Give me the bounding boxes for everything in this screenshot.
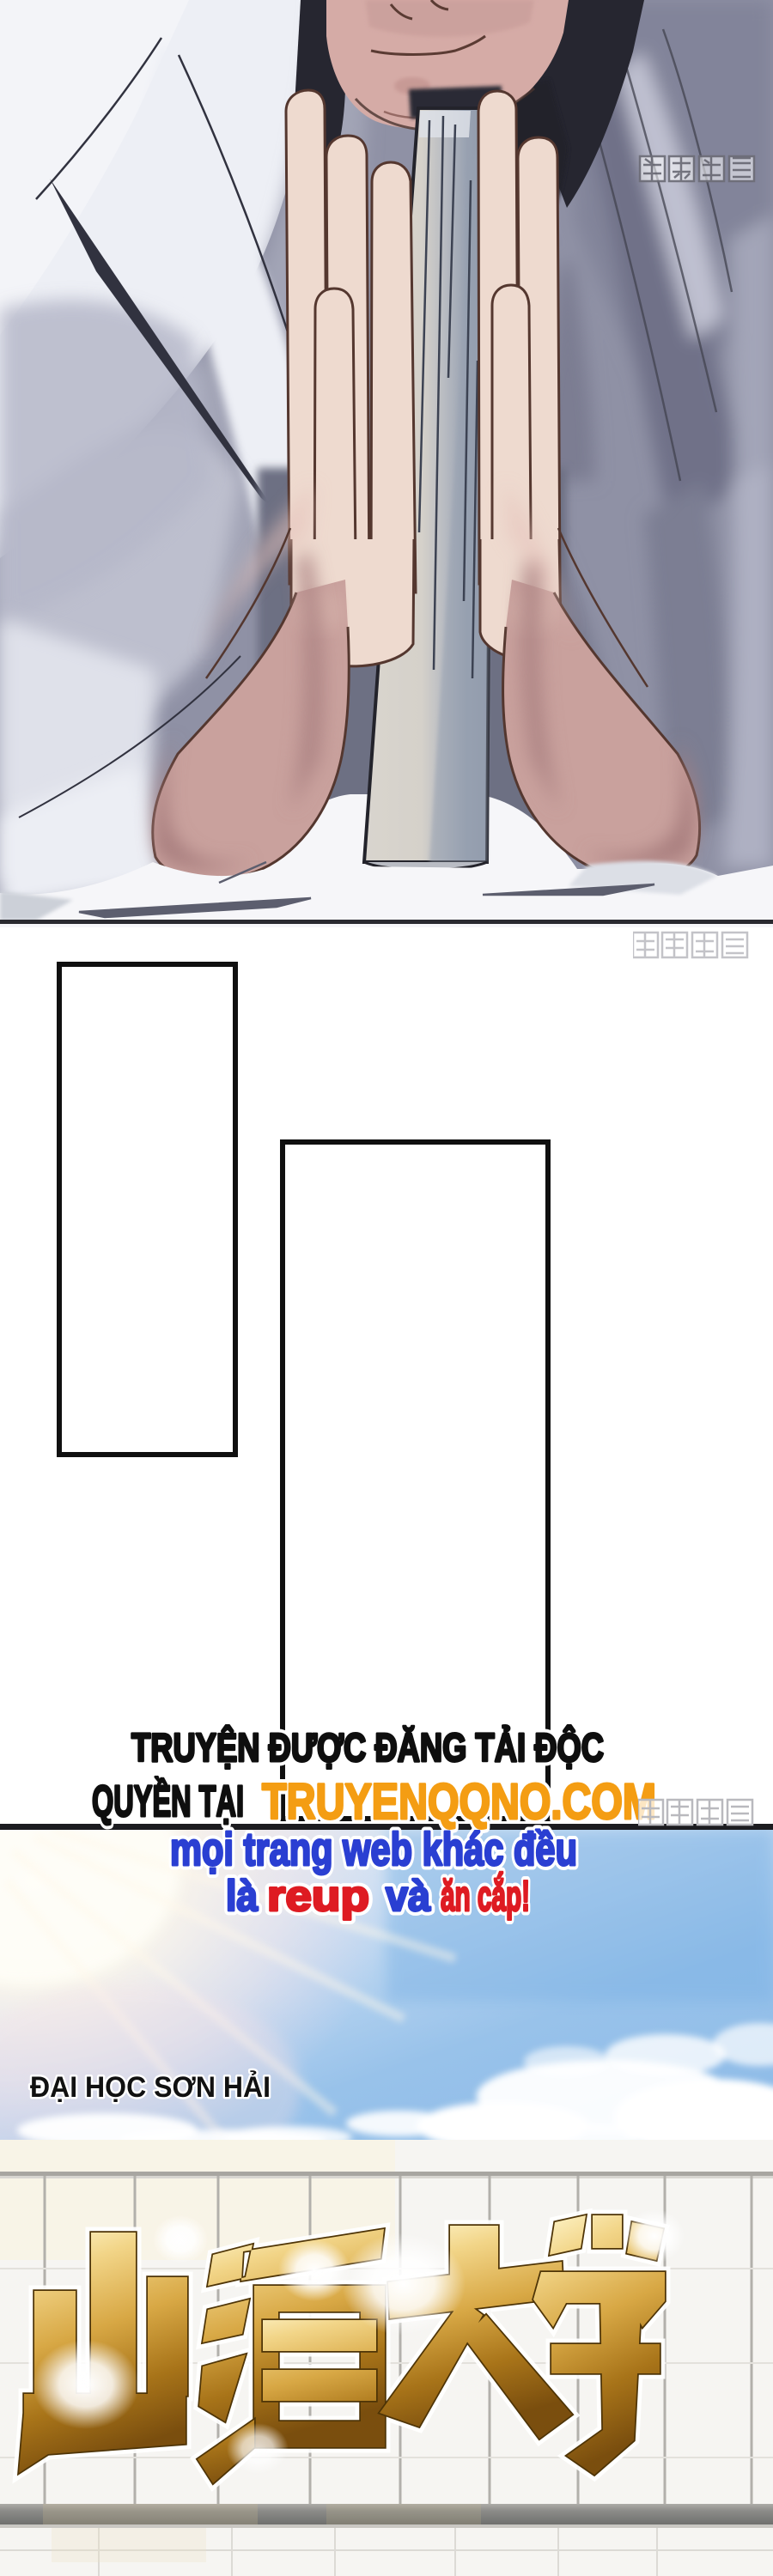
- svg-text:ĐẠI HỌC SƠN HẢI: ĐẠI HỌC SƠN HẢI: [30, 2071, 271, 2104]
